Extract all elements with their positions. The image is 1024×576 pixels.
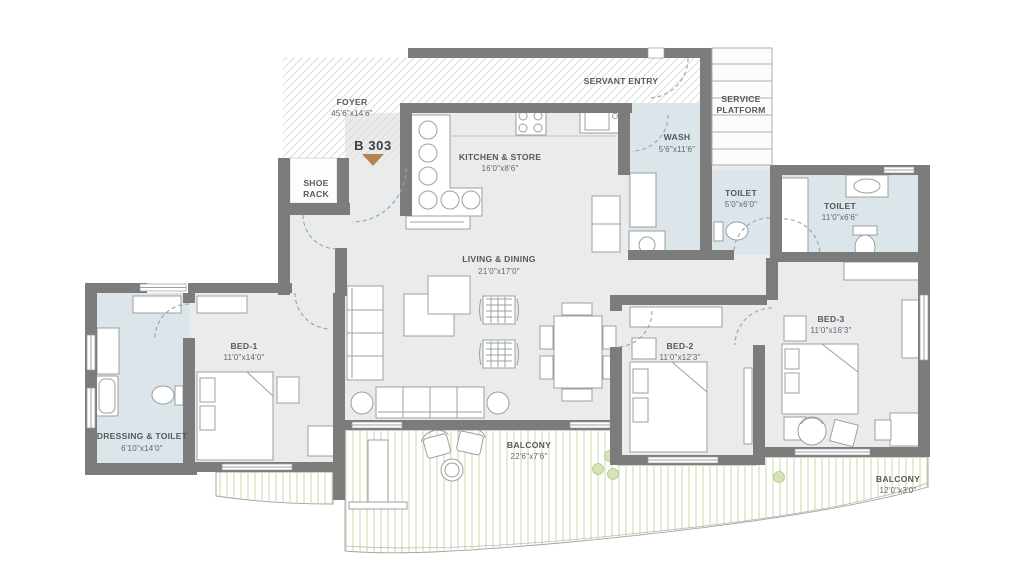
bed2-label: BED-2 (666, 341, 693, 351)
balcony-main-dims: 22'6"x7'6" (511, 452, 548, 461)
toilet-master-dims: 11'0"x6'6" (822, 213, 858, 222)
wardrobe-unit-icon (902, 300, 920, 358)
wc-tank-icon (175, 386, 183, 405)
dressing-top-wardrobe (133, 296, 181, 313)
wash-counter-icon (630, 173, 656, 227)
armchair-icon (480, 296, 519, 324)
dressing-dims: 6'10"x14'0" (121, 444, 163, 453)
bed3-dims: 11'0"x16'3" (810, 326, 851, 335)
bed1-label: BED-1 (230, 341, 257, 351)
servant-entry-label: SERVANT ENTRY (584, 76, 659, 86)
bed-icon (630, 362, 707, 452)
foyer-dims: 45'6"x14'6" (331, 109, 373, 118)
wc-icon (726, 222, 748, 240)
bed2-dims: 11'0"x12'3" (659, 353, 700, 362)
shoe-rack-label: RACK (303, 189, 329, 199)
wc-tank-icon (853, 226, 877, 235)
shoe-rack-label: SHOE (303, 178, 328, 188)
wc-icon (152, 386, 174, 404)
dressing-label: DRESSING & TOILET (97, 431, 188, 441)
dresser-icon (308, 426, 334, 456)
foyer-label: FOYER (337, 97, 368, 107)
toilet-master-shower-closet (780, 178, 808, 256)
bed-icon (197, 372, 273, 460)
chair-icon (875, 420, 891, 440)
bed3-wardrobe (844, 262, 920, 280)
bed1-wardrobe (197, 296, 247, 313)
armchair-icon (480, 340, 519, 368)
lounge-unit-icon (428, 276, 470, 314)
unit-number-label: B 303 (354, 138, 392, 153)
balcony-side-label: BALCONY (876, 474, 920, 484)
toilet-small-label: TOILET (725, 188, 757, 198)
kitchen-label: KITCHEN & STORE (459, 152, 541, 162)
tub-chair-icon (798, 417, 826, 445)
servant-entry-opening (648, 48, 664, 58)
service-platform-label: PLATFORM (716, 105, 765, 115)
balcony-bench-icon (349, 502, 407, 509)
side-table-icon (784, 316, 806, 341)
floor-plan-page: FOYER 45'6"x14'6" SERVANT ENTRY SERVICE … (0, 0, 1024, 576)
room-toilet-small-floor (712, 170, 772, 255)
service-platform-label: SERVICE (721, 94, 760, 104)
living-dining-label: LIVING & DINING (462, 254, 536, 264)
bed3-label: BED-3 (817, 314, 844, 324)
bed-icon (782, 344, 858, 414)
round-table-icon (441, 459, 463, 481)
side-table-icon (277, 377, 299, 403)
wc-tank-icon (714, 222, 723, 241)
balcony-table-icon (368, 440, 388, 502)
toilet-master-label: TOILET (824, 201, 856, 211)
balcony-left-band-stripes (216, 472, 333, 504)
side-table-icon (351, 392, 373, 414)
side-table-icon (487, 392, 509, 414)
living-dining-dims: 21'0"x17'0" (478, 267, 520, 276)
bed2-wardrobe (630, 307, 722, 327)
floor-plan-drawing: FOYER 45'6"x14'6" SERVANT ENTRY SERVICE … (0, 0, 1024, 576)
balcony-main-label: BALCONY (507, 440, 551, 450)
tv-unit-icon (744, 368, 752, 444)
kitchen-dims: 16'0"x8'6" (482, 164, 519, 173)
bed1-dims: 11'0"x14'0" (223, 353, 264, 362)
desk-icon (890, 413, 920, 446)
wash-dims: 5'6"x11'6" (659, 145, 695, 154)
toilet-small-dims: 5'0"x6'0" (725, 200, 757, 209)
dressing-linen-closet (97, 328, 119, 374)
wash-label: WASH (664, 132, 691, 142)
balcony-side-dims: 12'0"x3'0" (880, 486, 917, 495)
